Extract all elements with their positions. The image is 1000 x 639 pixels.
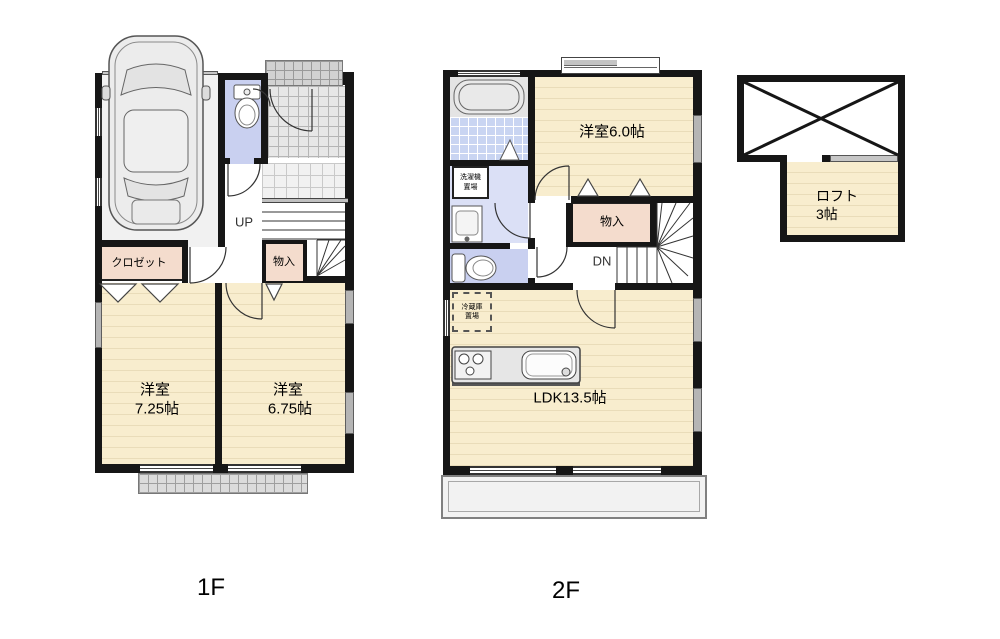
bedroom-60-label: 洋室6.0帖 xyxy=(579,121,645,142)
window xyxy=(470,466,556,475)
entrance-step xyxy=(268,158,345,163)
wall xyxy=(218,158,230,164)
bedroom-725-size: 7.25帖 xyxy=(135,398,179,419)
window xyxy=(228,464,301,473)
stairs-up-label: UP xyxy=(235,215,253,230)
wall xyxy=(780,235,905,242)
loft-hatch-square xyxy=(822,155,830,162)
wall xyxy=(443,283,573,290)
wall xyxy=(305,276,354,283)
terrace xyxy=(138,473,308,494)
wall xyxy=(528,238,535,249)
wall xyxy=(737,75,744,162)
window xyxy=(95,302,102,348)
wall xyxy=(443,70,450,475)
wall xyxy=(780,155,787,242)
wall xyxy=(566,242,657,247)
stair-landing-edge xyxy=(262,198,348,203)
bathroom-tub-area xyxy=(450,77,528,117)
window xyxy=(140,464,213,473)
loft-void-x xyxy=(744,82,898,155)
floor-label-1f: 1F xyxy=(197,574,225,602)
wall xyxy=(528,70,535,203)
entrance-tile xyxy=(268,86,345,160)
wall xyxy=(343,72,354,85)
bay-window xyxy=(561,57,660,74)
wall xyxy=(615,283,700,290)
fridge-space-line2: 置場 xyxy=(454,312,490,321)
bay-window-line xyxy=(564,67,657,68)
wall xyxy=(571,196,693,203)
window xyxy=(345,290,354,324)
washer-space-box: 洗濯機 置場 xyxy=(452,166,489,199)
wall xyxy=(254,158,268,164)
bedroom-675-room xyxy=(222,283,345,464)
storage-1f-label: 物入 xyxy=(273,253,295,269)
storage-2f-label: 物入 xyxy=(600,213,624,230)
fridge-space-line1: 冷蔵庫 xyxy=(454,303,490,312)
fridge-space-box: 冷蔵庫 置場 xyxy=(452,292,492,332)
washer-space-line1: 洗濯機 xyxy=(454,173,487,182)
window xyxy=(345,392,354,434)
wall xyxy=(95,240,188,247)
entrance-hall-tile xyxy=(262,163,348,198)
window xyxy=(693,298,702,342)
wall xyxy=(898,75,905,242)
bedroom-675-name: 洋室 xyxy=(273,379,303,400)
entrance-porch xyxy=(265,60,343,86)
ldk-label: LDK13.5帖 xyxy=(533,387,606,408)
floorplan-canvas: クロゼット 物入 UP 洋室 7.25帖 洋室 6.75帖 xyxy=(0,0,1000,639)
window xyxy=(443,300,450,336)
garage-shutter xyxy=(102,71,218,75)
wall xyxy=(443,243,510,249)
bedroom-675-size: 6.75帖 xyxy=(268,398,312,419)
bedroom-725-name: 洋室 xyxy=(140,379,170,400)
wall xyxy=(182,240,188,283)
balcony xyxy=(441,475,707,519)
window xyxy=(693,115,702,163)
toilet-1f-room xyxy=(225,80,261,164)
washer-space-line2: 置場 xyxy=(454,183,487,192)
window xyxy=(573,466,661,475)
toilet-2f-room xyxy=(450,249,528,283)
wall xyxy=(650,203,657,242)
loft-ladder-bar xyxy=(830,155,898,162)
wall xyxy=(95,464,354,473)
wall xyxy=(566,203,573,242)
closet-1f-label: クロゼット xyxy=(112,254,167,270)
bay-window-bar xyxy=(564,60,617,66)
wall xyxy=(261,73,268,164)
loft-name-label: ロフト xyxy=(816,186,858,206)
loft-size-label: 3帖 xyxy=(816,204,838,224)
floor-label-2f: 2F xyxy=(552,577,580,605)
stairs-dn-label: DN xyxy=(593,254,612,269)
window xyxy=(693,388,702,432)
window xyxy=(458,70,520,77)
window xyxy=(95,108,102,136)
window xyxy=(95,178,102,206)
wall xyxy=(737,75,905,82)
wall xyxy=(215,283,222,464)
bedroom-725-room xyxy=(102,283,215,464)
garage-area xyxy=(102,73,225,247)
bathroom-floor xyxy=(450,117,528,160)
